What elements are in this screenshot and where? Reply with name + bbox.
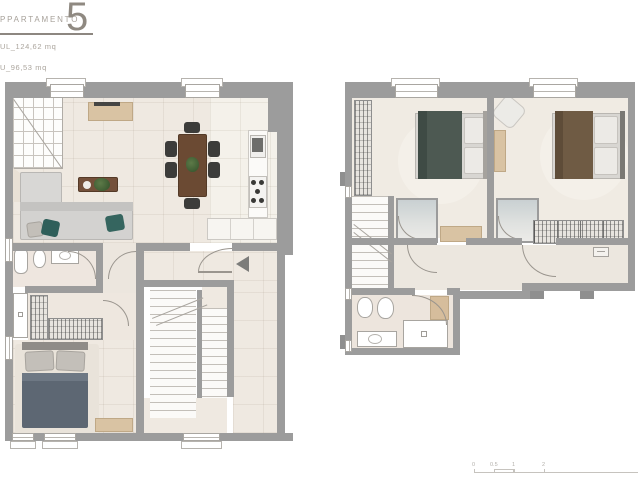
scale-tick [544,469,545,473]
window-sill [10,441,36,449]
basin-icon [368,334,382,344]
scale-segment [514,472,544,473]
shower-drain-icon [18,312,23,317]
wall-segment [227,287,234,397]
outer-wall-bottom-right [522,283,635,291]
scale-label: 0 [472,462,475,468]
window [533,84,576,98]
bed-headboard [620,111,625,179]
window [185,84,220,98]
scale-label: 1 [512,462,515,468]
wall-segment [5,243,103,251]
chaise-lounge [20,172,62,204]
apartment-number: 5 [66,0,88,37]
scale-segment-box [494,469,514,473]
blanket-fold [22,373,88,381]
burner-icon [259,180,264,185]
wall-segment [352,288,415,295]
wardrobe [30,295,48,340]
dining-chair [184,198,200,209]
scale-tick [514,469,515,473]
burner-icon [259,198,264,203]
tray-icon [83,181,91,189]
shower-drain-icon [421,331,427,337]
window [345,340,352,352]
scale-label: 2 [542,462,545,468]
kitchen-counter-bottom [207,218,277,240]
outer-wall-step [453,291,530,299]
dining-chair [165,162,177,178]
header-underline [0,33,93,35]
counter-seam [253,219,254,239]
wall-step-connector [522,283,530,299]
dining-chair [184,122,200,133]
bedroom-bench [95,418,133,432]
bathtub [14,248,28,274]
console-icon [593,247,609,257]
pilaster [580,291,594,299]
wall-shaft [268,98,277,132]
blanket-drape [418,111,427,179]
wall-segment [466,238,522,245]
bed-pillow [55,350,85,371]
table-plant-icon [186,157,199,172]
wall-segment [277,255,285,441]
counter-seam [230,219,231,239]
outer-wall-left [5,86,13,441]
window [345,186,352,198]
dining-chair [208,162,220,178]
entry-door-leaf [198,271,232,273]
floor-plan-canvas: PPARTAMENTO 5 UL_124,62 mq U_96,53 mq [0,0,640,480]
burner-icon [251,198,256,203]
scale-segment-long [544,472,638,473]
bed-pillow [464,147,484,174]
burner-icon [251,180,256,185]
sofa-backrest [20,202,133,211]
plan-header: PPARTAMENTO 5 UL_124,62 mq U_96,53 mq [0,0,120,78]
toilet [377,297,394,319]
bed-pillow [594,116,618,144]
window-sill [181,441,222,449]
window [44,433,76,441]
scale-segment [474,472,494,473]
sink-basin-icon [252,138,263,152]
outer-wall-top [345,82,635,98]
wall-segment [143,243,190,251]
pilaster [530,291,544,299]
corridor-floor [233,281,277,433]
outer-wall-right [277,86,293,255]
window [5,238,13,262]
sofa-pillow-teal [41,218,61,237]
plant-icon [94,178,110,191]
staircase-flight-right [202,308,227,398]
outer-wall-right [628,86,635,291]
bidet [357,297,373,318]
dining-chair [165,141,177,157]
toilet [33,249,46,268]
dining-chair [208,141,220,157]
window-sill [42,441,78,449]
blanket-drape [555,111,563,179]
area-su-label: U_96,53 mq [0,63,47,72]
wall-segment [136,243,144,433]
pilaster [340,172,345,186]
wall-segment [96,243,103,286]
desk [494,130,506,172]
bed-pillow [464,117,484,144]
bed-headboard [22,342,88,350]
wall-segment [143,280,234,287]
outer-wall-bath-bottom [345,348,460,355]
outer-wall-left [345,86,352,355]
window [345,288,352,300]
window [5,336,13,360]
window [12,433,34,441]
window [395,84,438,98]
tv-icon [94,102,120,106]
console-line [597,251,605,252]
window [183,433,220,441]
wall-segment [556,238,635,245]
scale-label: 0.5 [490,462,498,468]
scale-tick [474,469,475,473]
bed-pillow [594,147,618,175]
wardrobe [48,318,103,340]
bedroom-divider-wall [487,98,494,245]
wardrobe [354,100,372,196]
wall-segment [352,238,437,245]
bed-pillow [24,350,54,371]
wall-segment [25,286,103,293]
entrance-arrow-icon [236,256,249,272]
burner-icon [255,189,260,194]
window [50,84,84,98]
bed-blanket [22,373,88,428]
area-sul-label: UL_124,62 mq [0,42,56,51]
sofa-pillow-teal-2 [105,214,126,233]
